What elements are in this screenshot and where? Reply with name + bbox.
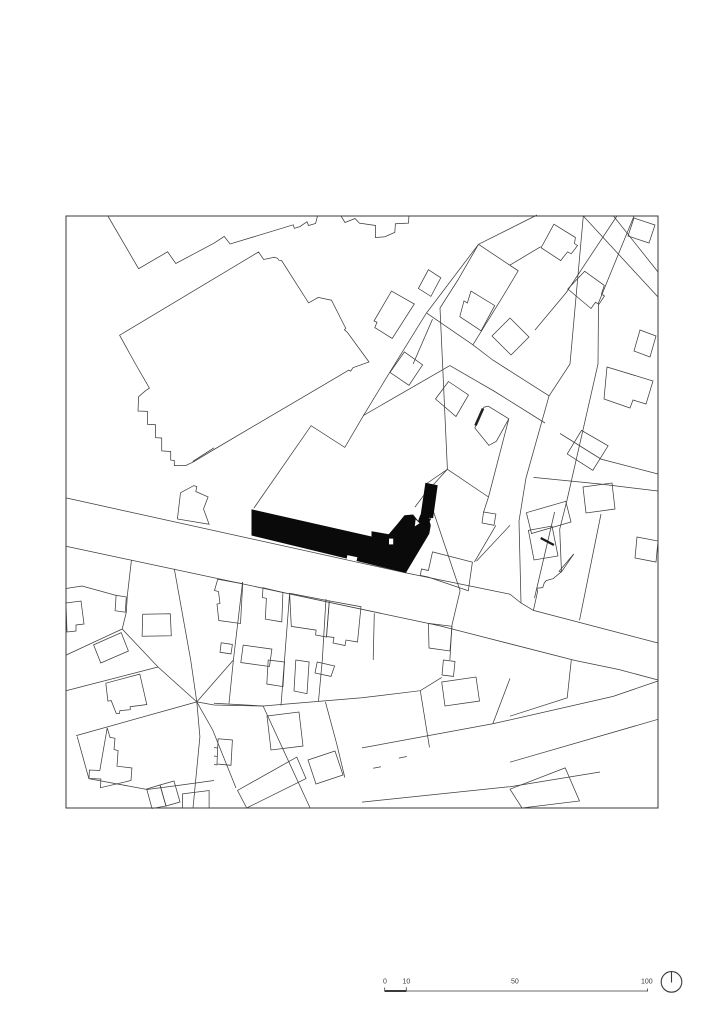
svg-text:100: 100 — [641, 979, 653, 986]
svg-text:50: 50 — [511, 979, 519, 986]
svg-text:0: 0 — [383, 979, 387, 986]
svg-text:10: 10 — [403, 979, 411, 986]
